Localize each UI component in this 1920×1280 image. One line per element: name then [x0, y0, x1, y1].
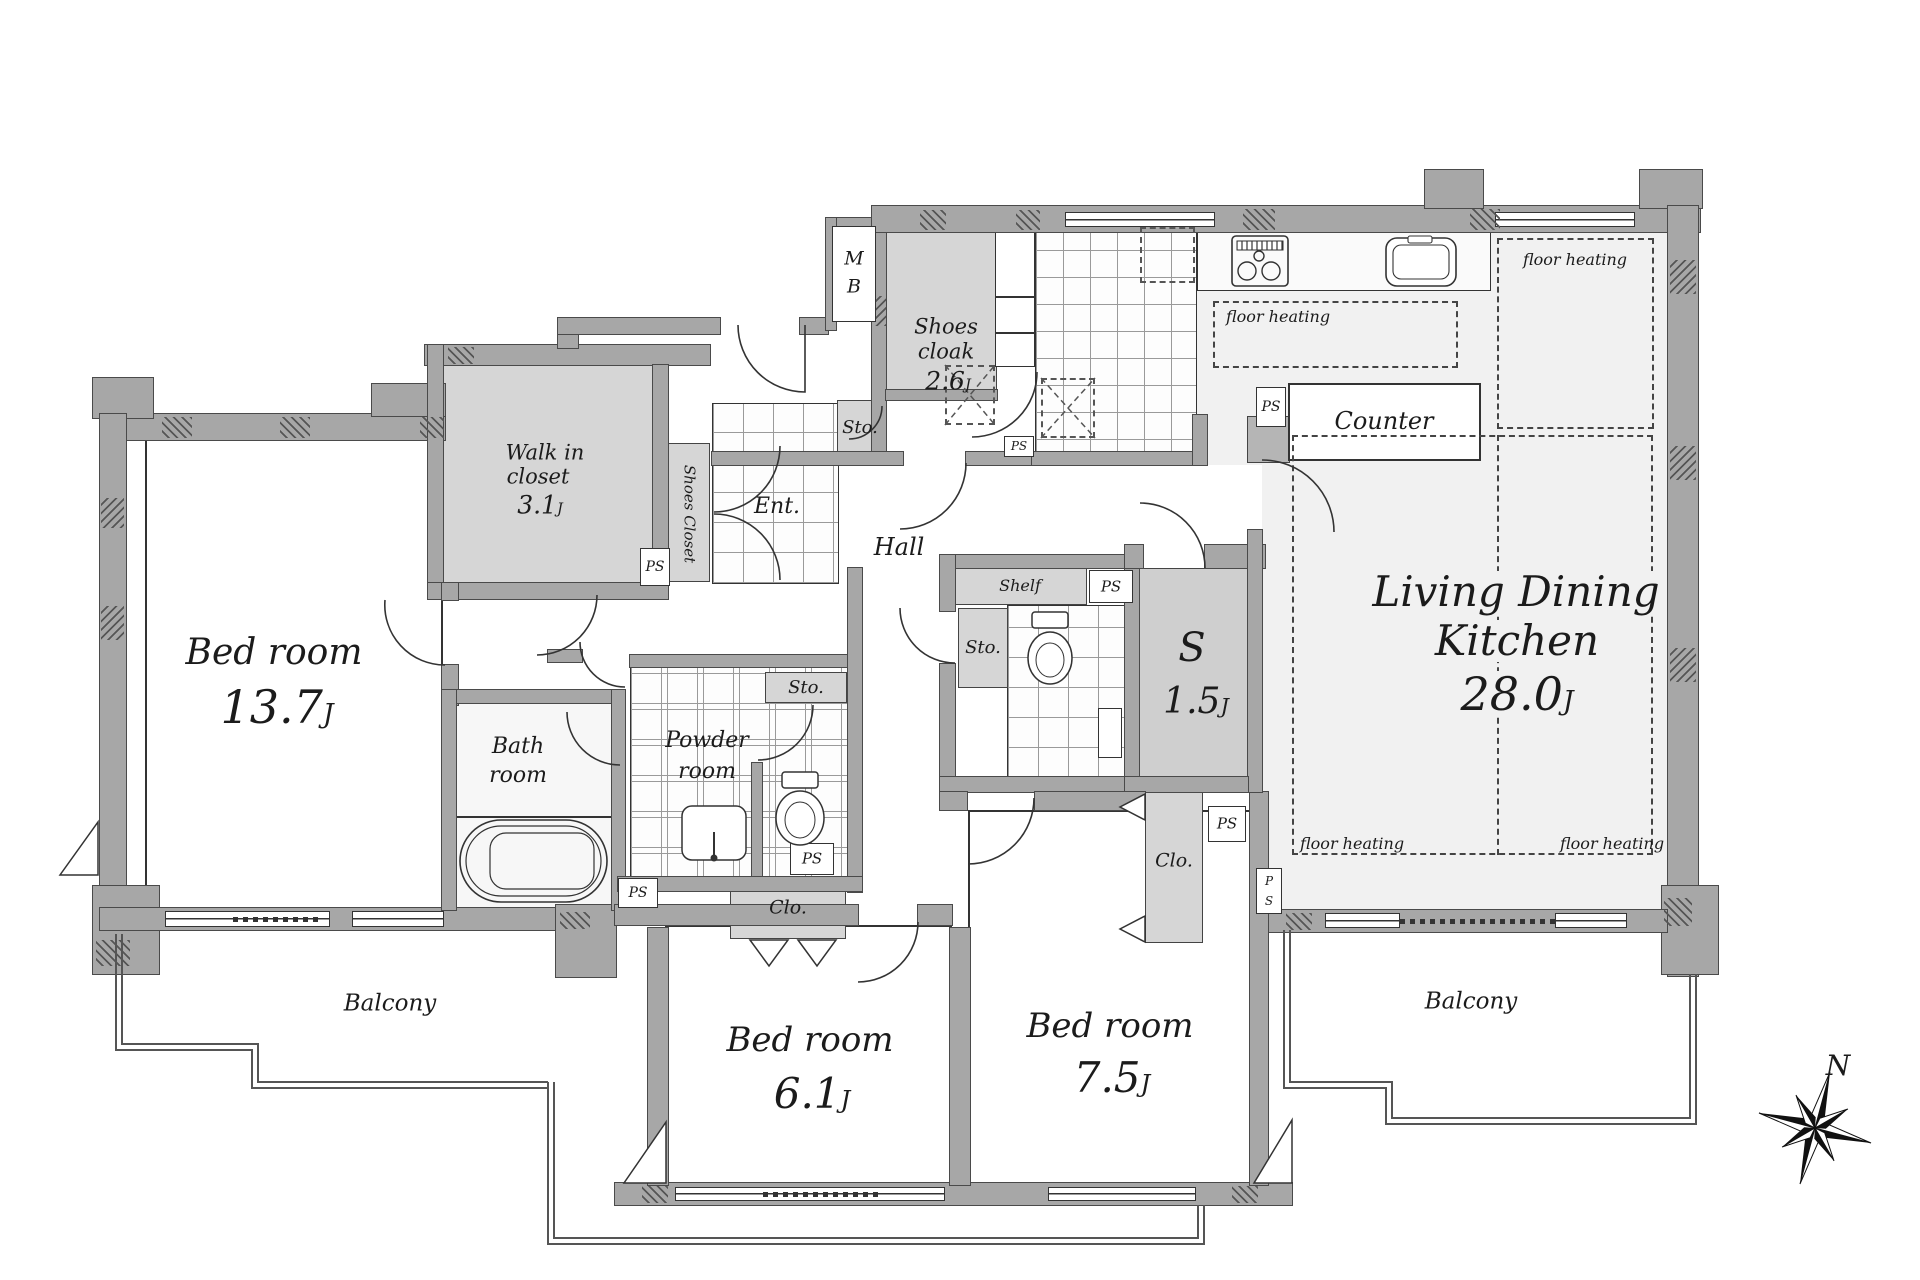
hall-label: Hall: [874, 535, 925, 559]
floor-plan: Bed room 13.7J Bed room 6.1J Bed room 7.…: [0, 0, 1920, 1280]
floor-heating-label: floor heating: [1523, 252, 1627, 268]
kitchen-cabinet-divider: [995, 332, 1035, 334]
ps-label: PS: [1261, 400, 1280, 414]
kitchen-counter-strip: [1197, 223, 1491, 291]
compass-icon: [1744, 1057, 1886, 1199]
ps-label: PS: [1101, 580, 1121, 595]
entrance-label: Ent.: [754, 496, 800, 518]
floor-heating-label: floor heating: [1300, 836, 1404, 852]
wic-label-line1: Walk in: [506, 443, 585, 464]
bath-label-line1: Bath: [492, 736, 544, 758]
hall-door-arc: [900, 463, 966, 529]
bath-label-line2: room: [489, 765, 547, 787]
entrance-door-arc: [738, 325, 805, 392]
balcony-right-label: Balcony: [1425, 991, 1518, 1014]
shoes-cloak-area: 2.6J: [925, 369, 971, 394]
meter-box: [832, 226, 876, 322]
balcony-left-label: Balcony: [344, 993, 437, 1016]
floor-heating-label: floor heating: [1226, 309, 1330, 325]
bedroom-main-label: Bed room: [186, 635, 363, 671]
service-room-floor: [1139, 568, 1248, 779]
ldk-label-line1: Living Dining: [1366, 571, 1665, 613]
shoes-closet-label: Shoes Closet: [682, 465, 697, 563]
powder-label-line2: room: [678, 761, 736, 783]
meter-box-label-m: M: [844, 250, 863, 269]
ps-label: PS: [645, 560, 664, 574]
powder-label-line1: Powder: [665, 730, 749, 752]
bedroom-main-area: 13.7J: [220, 684, 333, 730]
meter-box-label-b: B: [847, 278, 861, 297]
compass-north-label: N: [1826, 1052, 1851, 1080]
ps-stacked-top: P: [1265, 875, 1273, 887]
service-room-door-arc: [1140, 503, 1205, 568]
ldk-label-line2: Kitchen: [1429, 620, 1605, 662]
ps-label: PS: [802, 852, 822, 867]
floor-heating-label: floor heating: [1560, 836, 1664, 852]
bedroom-right-label: Bed room: [1026, 1009, 1193, 1043]
bedroom-mid-area: 6.1J: [774, 1073, 851, 1115]
wic-label-line2: closet: [507, 467, 570, 488]
service-room-area: 1.5J: [1163, 684, 1229, 720]
bedroom-right-area: 7.5J: [1074, 1057, 1151, 1099]
counter-label: Counter: [1334, 409, 1433, 433]
service-room-label: S: [1178, 628, 1205, 668]
storage-label: Sto.: [842, 419, 878, 437]
bedroom-main-floor: [145, 438, 443, 910]
ps-label: PS: [628, 886, 647, 900]
closet-label: Clo.: [1155, 852, 1193, 871]
powder-corridor-door-arc: [580, 642, 625, 687]
bedroom-mid-label: Bed room: [726, 1023, 893, 1057]
equipment-space: [1041, 378, 1095, 438]
shelf-label: Shelf: [999, 578, 1041, 594]
toilet2-door-arc: [900, 608, 955, 663]
wic-door-arc: [537, 595, 597, 655]
ps-label: PS: [1217, 817, 1237, 832]
ps-label: PS: [1011, 440, 1027, 452]
bath-divider: [456, 816, 612, 818]
shoes-cloak-label-line2: cloak: [918, 342, 974, 363]
refrigerator-space: [1140, 227, 1195, 283]
wic-area: 3.1J: [517, 493, 563, 518]
kitchen-cabinet-divider: [995, 296, 1035, 298]
toilet-paper-holder: [1098, 708, 1122, 758]
shoes-cloak-label-line1: Shoes: [914, 317, 978, 338]
ldk-area: 28.0J: [1454, 671, 1579, 717]
closet-label: Clo.: [769, 899, 807, 918]
ps-stacked-bottom: S: [1265, 895, 1273, 907]
bedroom-right-floor: [968, 810, 1252, 1185]
storage-label: Sto.: [788, 679, 824, 697]
storage-label: Sto.: [965, 639, 1001, 657]
